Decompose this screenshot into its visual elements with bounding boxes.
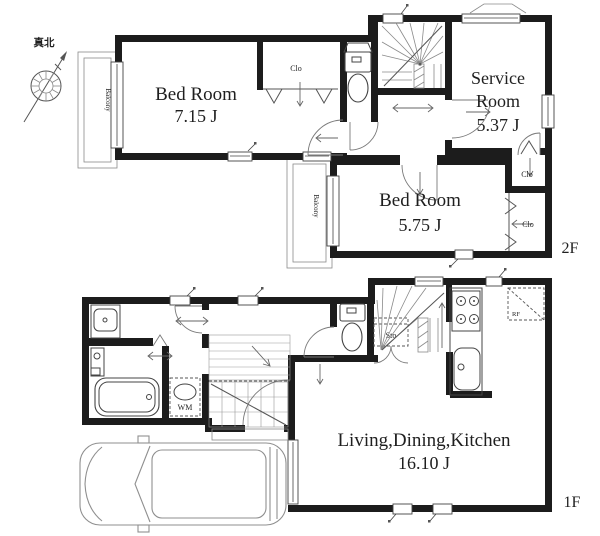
entrance-tile-floor xyxy=(209,381,290,427)
stairs-icon xyxy=(377,286,444,352)
closet-lower-label: Clo xyxy=(522,220,534,229)
bedroom2-name: Bed Room xyxy=(379,190,461,211)
floor-2f-plan: Bed Room 7.15 J Clo Service Room 5.37 J … xyxy=(78,4,579,268)
stairs-icon xyxy=(382,23,443,88)
refrigerator-label: RF xyxy=(512,311,520,318)
folding-door-icon xyxy=(153,335,167,346)
toilet-icon xyxy=(344,43,372,102)
window xyxy=(542,95,554,128)
hall-steps xyxy=(209,335,290,380)
bedroom1-closet-label: Clo xyxy=(290,64,302,73)
washing-machine-icon: WM xyxy=(170,378,200,416)
floorplan-drawing: 真北 xyxy=(0,0,600,536)
window xyxy=(303,152,331,161)
window xyxy=(327,176,339,246)
bedroom1-name: Bed Room xyxy=(155,84,237,105)
bedroom2-area: 5.75 J xyxy=(398,215,441,235)
bay-window-icon xyxy=(470,4,526,13)
toilet-icon xyxy=(340,304,365,351)
balcony-center-label: Balcony xyxy=(312,194,320,218)
balcony-center xyxy=(287,158,332,268)
service-room-area: 5.37 J xyxy=(476,115,519,135)
vent-window xyxy=(228,142,257,161)
service-room-name-1: Service xyxy=(471,68,525,88)
floorplan-page: 真北 xyxy=(0,0,600,536)
floor-1f-plan: WM Sto xyxy=(80,268,581,532)
kitchen-counter xyxy=(450,288,482,395)
washbasin-icon xyxy=(91,305,120,338)
window xyxy=(288,440,298,504)
window xyxy=(415,277,443,286)
kitchen-stove-icon xyxy=(452,291,480,331)
balcony-west-label: Balcony xyxy=(104,88,112,112)
true-north-label: 真北 xyxy=(34,36,55,49)
direction-arrows-1f xyxy=(148,303,445,384)
ldk-name: Living,Dining,Kitchen xyxy=(337,430,511,451)
kitchen-sink-icon xyxy=(454,348,480,390)
ldk-area: 16.10 J xyxy=(398,453,450,473)
compass-icon: 真北 xyxy=(24,36,67,122)
floor-2f-label: 2F xyxy=(562,240,579,257)
bedroom1-area: 7.15 J xyxy=(174,106,217,126)
service-room-name-2: Room xyxy=(476,91,520,111)
windows-2f xyxy=(111,4,554,268)
washing-machine-label: WM xyxy=(178,403,193,412)
bathtub-icon xyxy=(91,348,159,416)
floor-1f-label: 1F xyxy=(564,494,581,511)
window xyxy=(462,14,520,23)
door-swings-1f xyxy=(175,306,334,425)
car-icon xyxy=(80,436,286,532)
closet-upper-label: Clo xyxy=(521,170,533,179)
refrigerator-icon: RF xyxy=(508,288,544,320)
